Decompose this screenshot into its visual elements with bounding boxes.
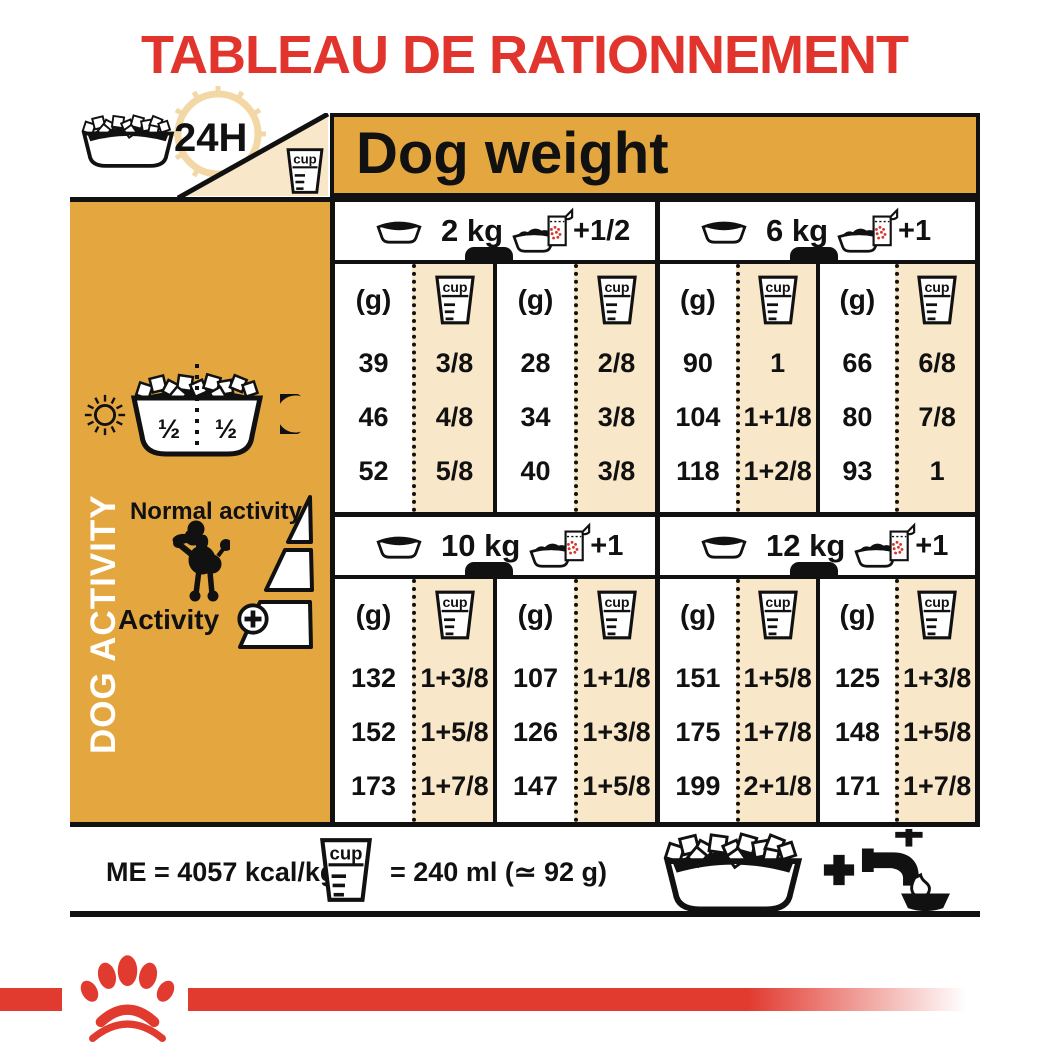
cups-column: 1 1+1/8 1+2/8 (736, 264, 816, 512)
empty-bowl-icon (375, 216, 423, 246)
cup-value: 3/8 (598, 390, 636, 444)
royal-canin-paw-logo (70, 954, 185, 1049)
ration-subtable: (g) 151 175 199 1+5/8 1+7/8 2+1/8 (660, 579, 816, 822)
cup-value: 1+7/8 (903, 759, 971, 813)
grams-column: (g) 90 104 118 (660, 264, 736, 512)
extra-ration-icons (853, 522, 917, 570)
cup-value: 1+1/8 (582, 651, 650, 705)
half-left-label: ½ (158, 414, 181, 444)
weight-block-header: 10 kg +1 (335, 517, 655, 579)
extra-ration-value: +1/2 (573, 215, 630, 248)
ration-subtable: (g) 39 46 52 3/8 4/8 5/8 (335, 264, 493, 512)
poodle-icon (166, 520, 230, 604)
kibble-bowl-icon (658, 829, 808, 914)
cup-value: 4/8 (436, 390, 474, 444)
ration-subtable: (g) 125 148 171 1+3/8 1+5/8 1+7/8 (816, 579, 976, 822)
grams-unit-label: (g) (680, 579, 716, 651)
weight-block-header: 6 kg +1 (660, 202, 975, 264)
footer-bar: ME = 4057 kcal/kg = 240 ml (≃ 92 g) (70, 827, 980, 917)
extra-ration-icons (511, 207, 575, 255)
grams-column: (g) 125 148 171 (820, 579, 896, 822)
cup-value: 1 (770, 336, 785, 390)
dog-weight-header: Dog weight (330, 113, 980, 197)
cup-value: 3/8 (436, 336, 474, 390)
cup-value: 6/8 (918, 336, 956, 390)
metabolizable-energy-label: ME = 4057 kcal/kg (106, 857, 336, 888)
cup-icon (433, 273, 477, 327)
ration-subtable: (g) 66 80 93 6/8 7/8 1 (816, 264, 976, 512)
grams-unit-label: (g) (839, 264, 875, 336)
activity-plus-icon (236, 602, 270, 636)
grams-unit-label: (g) (356, 579, 392, 651)
cup-value: 2+1/8 (743, 759, 811, 813)
dog-activity-sidebar: ½ ½ DOG ACTIVITY Normal activity (70, 197, 330, 827)
kibble-bag-icon (887, 522, 917, 564)
cup-icon (595, 273, 639, 327)
weight-block-10kg: 10 kg +1 (g) 132 152 173 (335, 512, 655, 822)
cup-icon (316, 835, 376, 905)
cup-value: 1+5/8 (743, 651, 811, 705)
cup-value: 1+3/8 (903, 651, 971, 705)
grams-value: 107 (513, 651, 558, 705)
ration-subtable: (g) 107 126 147 1+1/8 1+3/8 1+5/8 (493, 579, 655, 822)
cup-value: 3/8 (598, 444, 636, 498)
ration-subtable: (g) 28 34 40 2/8 3/8 3/8 (493, 264, 655, 512)
grams-value: 171 (835, 759, 880, 813)
grams-value: 173 (351, 759, 396, 813)
cup-value: 1+3/8 (582, 705, 650, 759)
grams-column: (g) 132 152 173 (335, 579, 412, 822)
ration-subtable: (g) 90 104 118 1 1+1/8 1+2/8 (660, 264, 816, 512)
activity-label: Activity (118, 604, 219, 636)
brand-bar-left (0, 988, 62, 1011)
plus-icon (822, 853, 856, 887)
cup-icon (915, 273, 959, 327)
ration-subtable: (g) 132 152 173 1+3/8 1+5/8 1+7/8 (335, 579, 493, 822)
empty-bowl-icon (700, 216, 748, 246)
tab-marker (465, 247, 513, 264)
dog-weight-value: 10 kg (441, 528, 520, 564)
empty-bowl-icon (700, 531, 748, 561)
weight-block-6kg: 6 kg +1 (g) 90 104 118 (655, 202, 975, 512)
extra-ration-value: +1 (590, 530, 623, 563)
grams-value: 152 (351, 705, 396, 759)
weight-block-2kg: 2 kg +1/2 (g) 39 46 52 (335, 202, 655, 512)
weight-block-body: (g) 39 46 52 3/8 4/8 5/8 (g) (335, 264, 655, 512)
grams-column: (g) 28 34 40 (497, 264, 574, 512)
grams-unit-label: (g) (356, 264, 392, 336)
kibble-bag-icon (870, 207, 900, 249)
cups-column: 3/8 4/8 5/8 (412, 264, 493, 512)
kibble-bag-icon (545, 207, 575, 249)
tab-marker (465, 562, 513, 579)
grams-value: 46 (358, 390, 388, 444)
grams-value: 148 (835, 705, 880, 759)
grams-value: 118 (676, 444, 720, 498)
weight-block-body: (g) 151 175 199 1+5/8 1+7/8 2+1/8 (g) (660, 579, 975, 822)
dog-weight-value: 12 kg (766, 528, 845, 564)
cup-value: 1+5/8 (903, 705, 971, 759)
page-title: TABLEAU DE RATIONNEMENT (0, 24, 1049, 86)
cups-column: 1+5/8 1+7/8 2+1/8 (736, 579, 816, 822)
extra-ration-value: +1 (915, 530, 948, 563)
grams-column: (g) 39 46 52 (335, 264, 412, 512)
packaging-panel: TABLEAU DE RATIONNEMENT 24H Dog weight (0, 0, 1049, 1049)
cup-equivalence-label: = 240 ml (≃ 92 g) (390, 857, 607, 888)
grams-value: 132 (351, 651, 396, 705)
cup-icon (595, 588, 639, 642)
moon-icon (280, 394, 310, 434)
grams-value: 66 (842, 336, 872, 390)
cup-value: 1+7/8 (743, 705, 811, 759)
weight-block-body: (g) 132 152 173 1+3/8 1+5/8 1+7/8 (g) (335, 579, 655, 822)
grams-unit-label: (g) (839, 579, 875, 651)
half-right-label: ½ (215, 414, 238, 444)
grams-value: 28 (520, 336, 550, 390)
cup-icon (756, 588, 800, 642)
cup-value: 1+1/8 (743, 390, 811, 444)
grams-value: 80 (842, 390, 872, 444)
extra-ration-icons (836, 207, 900, 255)
grams-column: (g) 151 175 199 (660, 579, 736, 822)
weight-block-12kg: 12 kg +1 (g) 151 175 199 (655, 512, 975, 822)
cups-column: 2/8 3/8 3/8 (574, 264, 655, 512)
cup-value: 1+3/8 (420, 651, 488, 705)
weight-block-header: 2 kg +1/2 (335, 202, 655, 264)
grams-unit-label: (g) (680, 264, 716, 336)
grams-value: 151 (675, 651, 720, 705)
grams-value: 175 (675, 705, 720, 759)
tab-marker (790, 562, 838, 579)
grams-column: (g) 66 80 93 (820, 264, 896, 512)
extra-ration-value: +1 (898, 215, 931, 248)
grams-value: 104 (675, 390, 720, 444)
grams-value: 147 (513, 759, 558, 813)
grams-value: 93 (842, 444, 872, 498)
grams-value: 52 (358, 444, 388, 498)
weight-block-body: (g) 90 104 118 1 1+1/8 1+2/8 (g) (660, 264, 975, 512)
cup-value: 1+2/8 (743, 444, 811, 498)
grams-unit-label: (g) (518, 579, 554, 651)
cup-value: 5/8 (436, 444, 474, 498)
cup-value: 7/8 (918, 390, 956, 444)
cup-value: 1+5/8 (582, 759, 650, 813)
grams-unit-label: (g) (518, 264, 554, 336)
cup-icon (756, 273, 800, 327)
cup-value: 1+7/8 (420, 759, 488, 813)
tab-marker (790, 247, 838, 264)
grams-value: 90 (683, 336, 713, 390)
half-ration-bowl-icon: ½ ½ (122, 362, 272, 467)
cup-icon (433, 588, 477, 642)
cups-column: 6/8 7/8 1 (895, 264, 975, 512)
grams-value: 40 (520, 444, 550, 498)
kibble-bag-icon (562, 522, 592, 564)
ration-table: 2 kg +1/2 (g) 39 46 52 (330, 197, 980, 827)
empty-bowl-icon (375, 531, 423, 561)
cup-value: 1+5/8 (420, 705, 488, 759)
cup-value: 1 (930, 444, 945, 498)
cups-column: 1+1/8 1+3/8 1+5/8 (574, 579, 655, 822)
grams-value: 39 (358, 336, 388, 390)
grams-value: 199 (675, 759, 720, 813)
grams-value: 34 (520, 390, 550, 444)
brand-bar-right (188, 988, 966, 1011)
cups-column: 1+3/8 1+5/8 1+7/8 (895, 579, 975, 822)
cup-icon (915, 588, 959, 642)
extra-ration-icons (528, 522, 592, 570)
cup-value: 2/8 (598, 336, 636, 390)
kibble-bowl-icon (78, 112, 178, 169)
grams-column: (g) 107 126 147 (497, 579, 574, 822)
water-faucet-icon (858, 827, 952, 915)
dog-weight-value: 2 kg (441, 213, 503, 249)
dog-weight-value: 6 kg (766, 213, 828, 249)
grams-value: 125 (835, 651, 880, 705)
grams-value: 126 (513, 705, 558, 759)
cup-icon (284, 146, 326, 196)
weight-block-header: 12 kg +1 (660, 517, 975, 579)
cups-column: 1+3/8 1+5/8 1+7/8 (412, 579, 493, 822)
